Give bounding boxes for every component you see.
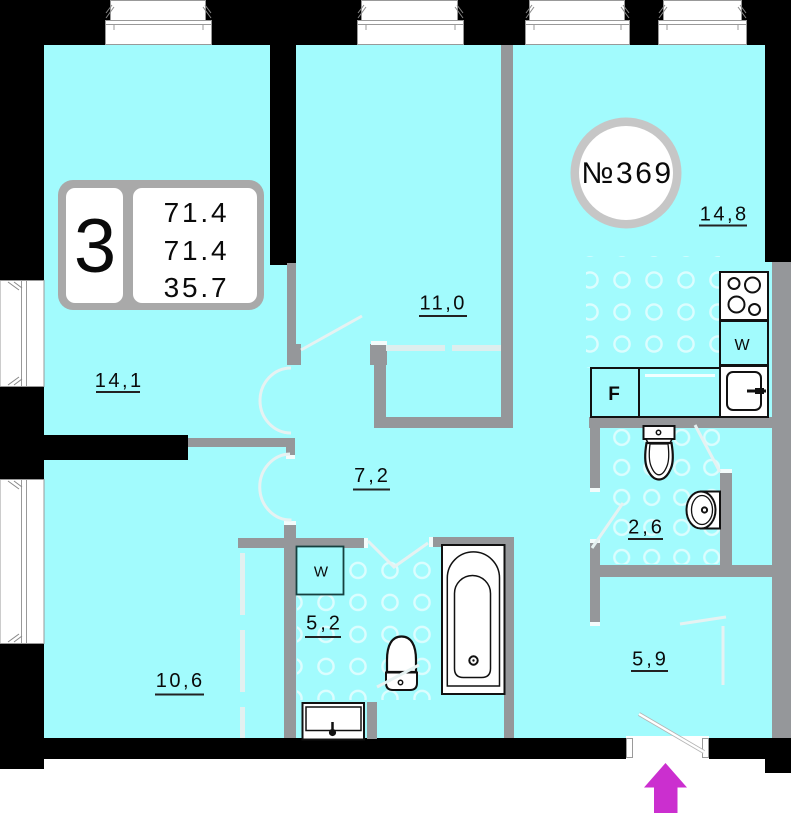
svg-text:2,6: 2,6: [628, 517, 665, 539]
svg-text:71.4: 71.4: [164, 235, 230, 266]
svg-text:№369: №369: [581, 157, 673, 190]
svg-text:14,8: 14,8: [700, 204, 749, 226]
svg-text:14,1: 14,1: [95, 370, 144, 392]
svg-text:W: W: [314, 564, 329, 581]
svg-text:71.4: 71.4: [164, 197, 230, 228]
svg-text:7,2: 7,2: [354, 465, 391, 487]
svg-text:11,0: 11,0: [419, 293, 466, 315]
svg-text:W: W: [734, 337, 750, 354]
svg-text:F: F: [608, 384, 620, 405]
svg-text:5,2: 5,2: [306, 613, 343, 635]
svg-text:3: 3: [74, 204, 116, 289]
svg-text:10,6: 10,6: [156, 670, 205, 692]
svg-text:35.7: 35.7: [164, 272, 230, 303]
svg-text:5,9: 5,9: [632, 649, 669, 671]
